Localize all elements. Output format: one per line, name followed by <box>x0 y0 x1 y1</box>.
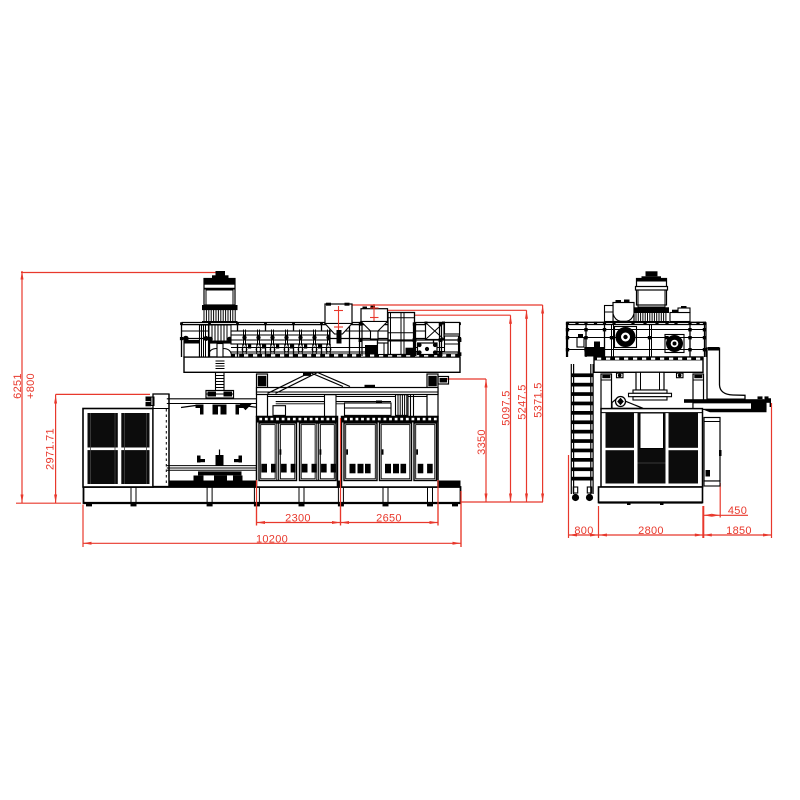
svg-text:5371.5: 5371.5 <box>533 382 545 417</box>
svg-text:450: 450 <box>728 505 747 517</box>
svg-text:3350: 3350 <box>476 429 488 455</box>
svg-text:800: 800 <box>574 525 593 537</box>
svg-text:1850: 1850 <box>726 525 752 537</box>
svg-text:2650: 2650 <box>376 512 402 524</box>
svg-text:2800: 2800 <box>638 525 664 537</box>
svg-text:2971.71: 2971.71 <box>45 428 57 470</box>
svg-text:5097.5: 5097.5 <box>501 390 513 425</box>
svg-text:+800: +800 <box>25 373 37 399</box>
svg-text:6251: 6251 <box>12 373 24 399</box>
svg-text:5247.5: 5247.5 <box>517 384 529 419</box>
svg-text:2300: 2300 <box>285 512 311 524</box>
svg-text:10200: 10200 <box>256 533 288 545</box>
